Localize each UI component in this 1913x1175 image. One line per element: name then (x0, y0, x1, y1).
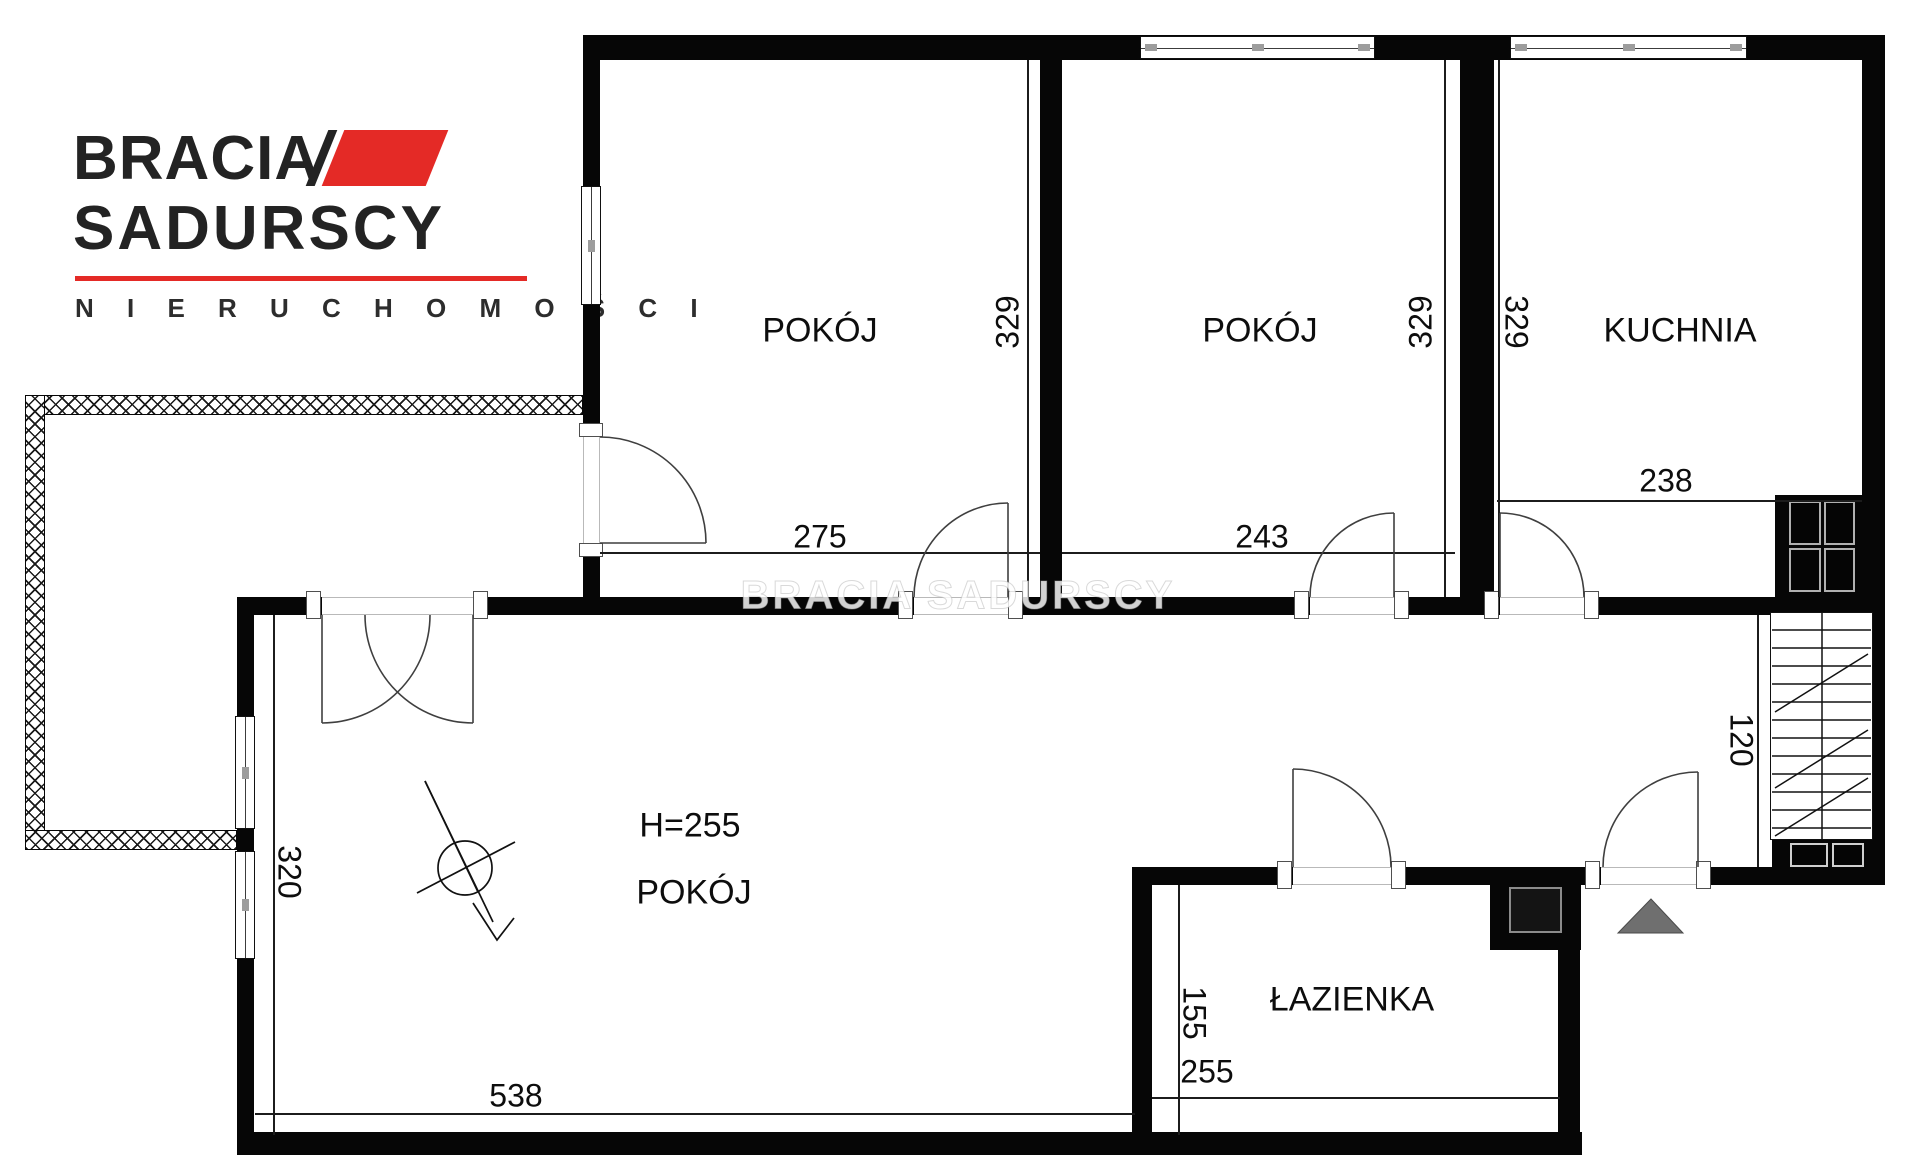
staircase-treads (1772, 613, 1871, 839)
balcony-door-swing (600, 437, 706, 543)
north-arrow-icon (417, 781, 515, 940)
floorplan-page: BRACIA SADURSCY N I E R U C H O M O Ś C … (0, 0, 1913, 1175)
entrance-arrow-icon (1618, 899, 1683, 933)
watermark-text: BRACIA SADURSCY (741, 574, 1176, 619)
room2-door-swing (1310, 513, 1394, 597)
french-double-door-swing (322, 615, 473, 723)
bathroom-door-swing (1293, 769, 1391, 867)
kitchen-door-swing (1500, 513, 1584, 597)
entrance-door-swing (1603, 772, 1698, 867)
